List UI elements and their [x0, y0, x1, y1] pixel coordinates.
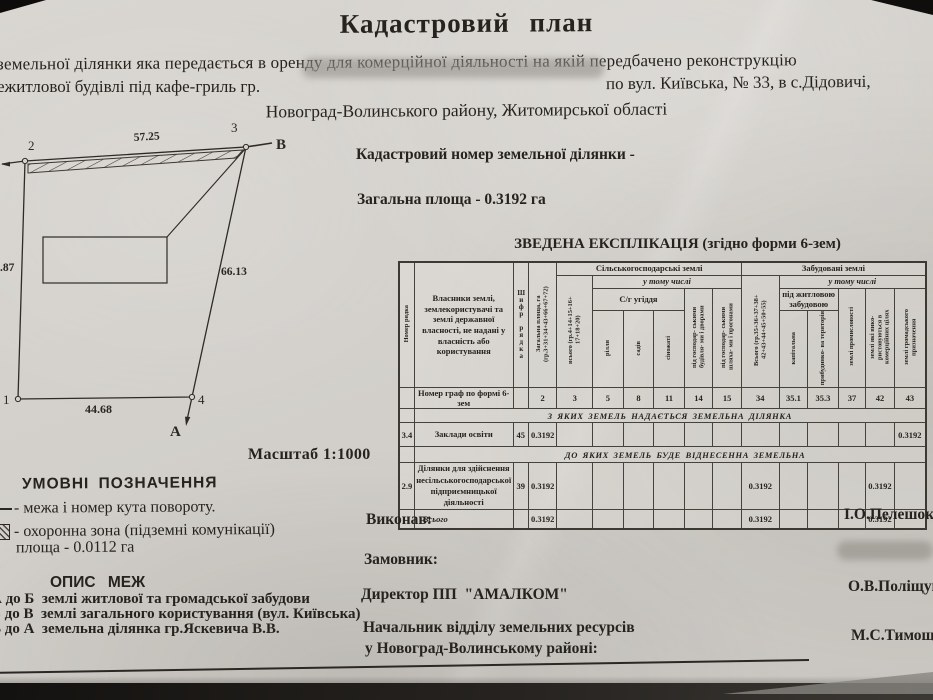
explication-title: ЗВЕДЕНА ЕКСПЛІКАЦІЯ (згідно форми 6-зем) [422, 236, 933, 253]
col-head-gosp-bud: під господар- ськими будівля- ми і двора… [684, 288, 713, 388]
cadastral-number-label: Кадастровий номер земельної ділянки - [356, 146, 635, 164]
plot-boundary [18, 147, 246, 399]
scanned-cadastral-plan-document: { "header": { "title": "Кадастровий план… [0, 0, 933, 700]
explication-table: Номер рядка Власники землі, землекористу… [398, 261, 927, 530]
col-head-owners: Власники землі, землекористувачі та земл… [414, 262, 513, 388]
col-head-agri-total: всього (гр.4+14+15+16+ 17+18+20) [557, 275, 593, 388]
group-built-incl: у тому числі [779, 275, 926, 288]
corner-point-2 [22, 158, 27, 163]
document-title: Кадастровий план [0, 5, 933, 43]
south-arrowhead [185, 417, 190, 426]
col-head-total-area: Загальна площа, га (гр.3+31+34+43+66+67+… [528, 262, 557, 388]
corner-point-3 [243, 144, 248, 149]
boundary-line-symbol [0, 508, 12, 510]
border-item-v-a: В до А земельна ділянка гр.Яскевича В.В. [0, 621, 280, 638]
col-head-gosp-shl: під господар- ськими шляха- ми і прогона… [713, 288, 742, 388]
graph-row-label: Номер граф по формі 6-зем [414, 388, 513, 409]
land-plot-diagram: В А 2 3 1 4 57.25 66.13 44.68 .87 [0, 112, 350, 472]
col-head-sadiv: садів [623, 310, 654, 387]
executor-label: Виконав: [366, 511, 432, 529]
chief-name: М.С.Тимощук [851, 627, 933, 645]
executor-name: І.О.Пелешок [844, 506, 933, 524]
length-top: 57.25 [133, 130, 160, 144]
west-arrowhead [1, 162, 10, 167]
table-row-2-9: 2.9 Ділянки для здійснення несільськогос… [399, 463, 926, 510]
length-right: 66.13 [221, 266, 247, 278]
corner-label-4: 4 [198, 392, 205, 407]
borders-heading: ОПИС МЕЖ [50, 574, 145, 592]
director-name: О.В.Поліщук [848, 578, 933, 596]
table-row-3-4: 3.4 Заклади освіти 45 0.3192 0.3192 [399, 423, 926, 447]
bottom-rule [0, 659, 809, 674]
col-head-rillia: рілля [593, 310, 624, 387]
direction-b-line [246, 143, 272, 147]
length-bottom: 44.68 [85, 402, 112, 416]
chief-label-line2: у Новоград-Волинському районі: [365, 640, 598, 658]
direction-a-label: А [170, 424, 181, 440]
graph-number-row: Номер граф по формі 6-зем 2 3 5 8 11 14 … [399, 388, 926, 409]
col-head-industry: землі промисловості [838, 288, 866, 388]
legend-item-zone: - охоронна зона (підземні комунікації) [14, 521, 275, 541]
legend-item-boundary: - межа і номер кута повороту. [14, 498, 216, 517]
col-head-public: землі громадського призначення [894, 288, 926, 388]
corner-point-4 [189, 394, 194, 399]
section-header-assigned-to: ДО ЯКИХ ЗЕМЕЛЬ БУДЕ ВІДНЕСЕННА ЗЕМЕЛЬНА [414, 447, 926, 463]
group-ugiddia: С/г угіддя [593, 288, 685, 310]
col-head-adjacent: прибудинко- ва територія [808, 310, 839, 387]
legend-zone-area: площа - 0.0112 га [16, 539, 134, 558]
building-outline [43, 237, 167, 283]
group-housing: під житловою забудовою [779, 288, 838, 310]
group-agricultural: Сільськогосподарські землі [557, 262, 741, 275]
corner-point-1 [15, 396, 20, 401]
director-label: Директор ПП "АМАЛКОМ" [361, 586, 568, 604]
legend-heading: УМОВНІ ПОЗНАЧЕННЯ [22, 474, 218, 493]
direction-b-label: В [276, 137, 286, 153]
header-line-2-left: ежитлової будівлі під кафе-гриль гр. [0, 77, 260, 97]
protective-zone-symbol [0, 524, 10, 540]
col-head-sinozhati: сіножаті [654, 310, 685, 387]
group-built-up: Забудовані землі [741, 262, 926, 275]
total-area-label: Загальна площа - 0.3192 га [357, 191, 546, 209]
col-head-row-number: Номер рядка [399, 262, 414, 388]
corner-label-1: 1 [3, 392, 10, 407]
section-header-allocated-from: З ЯКИХ ЗЕМЕЛЬ НАДАЄТЬСЯ ЗЕМЕЛЬНА ДІЛЯНКА [414, 409, 926, 423]
col-head-commercial: землі які вико- ристовуються в комерційн… [866, 288, 895, 388]
col-head-built-total: Всього (гр.35+36+37+38+ 42+43+44+45+50+5… [741, 275, 779, 388]
col-head-row-code: Шифр рядка [513, 262, 528, 388]
length-left: .87 [0, 262, 15, 274]
redacted-name-blur [302, 58, 604, 78]
scale-label: Масштаб 1:1000 [248, 446, 371, 464]
col-head-capital: капітальна [779, 310, 808, 387]
chief-label-line1: Начальник відділу земельних ресурсів [363, 619, 635, 637]
header-line-2-right: по вул. Київська, № 33, в с.Дідовичі, [606, 72, 871, 94]
group-agri-incl: у тому числі [593, 275, 742, 288]
customer-signature-blur [837, 541, 933, 560]
customer-label: Замовник: [364, 551, 438, 569]
corner-label-2: 2 [28, 138, 35, 153]
corner-label-3: 3 [231, 120, 238, 135]
